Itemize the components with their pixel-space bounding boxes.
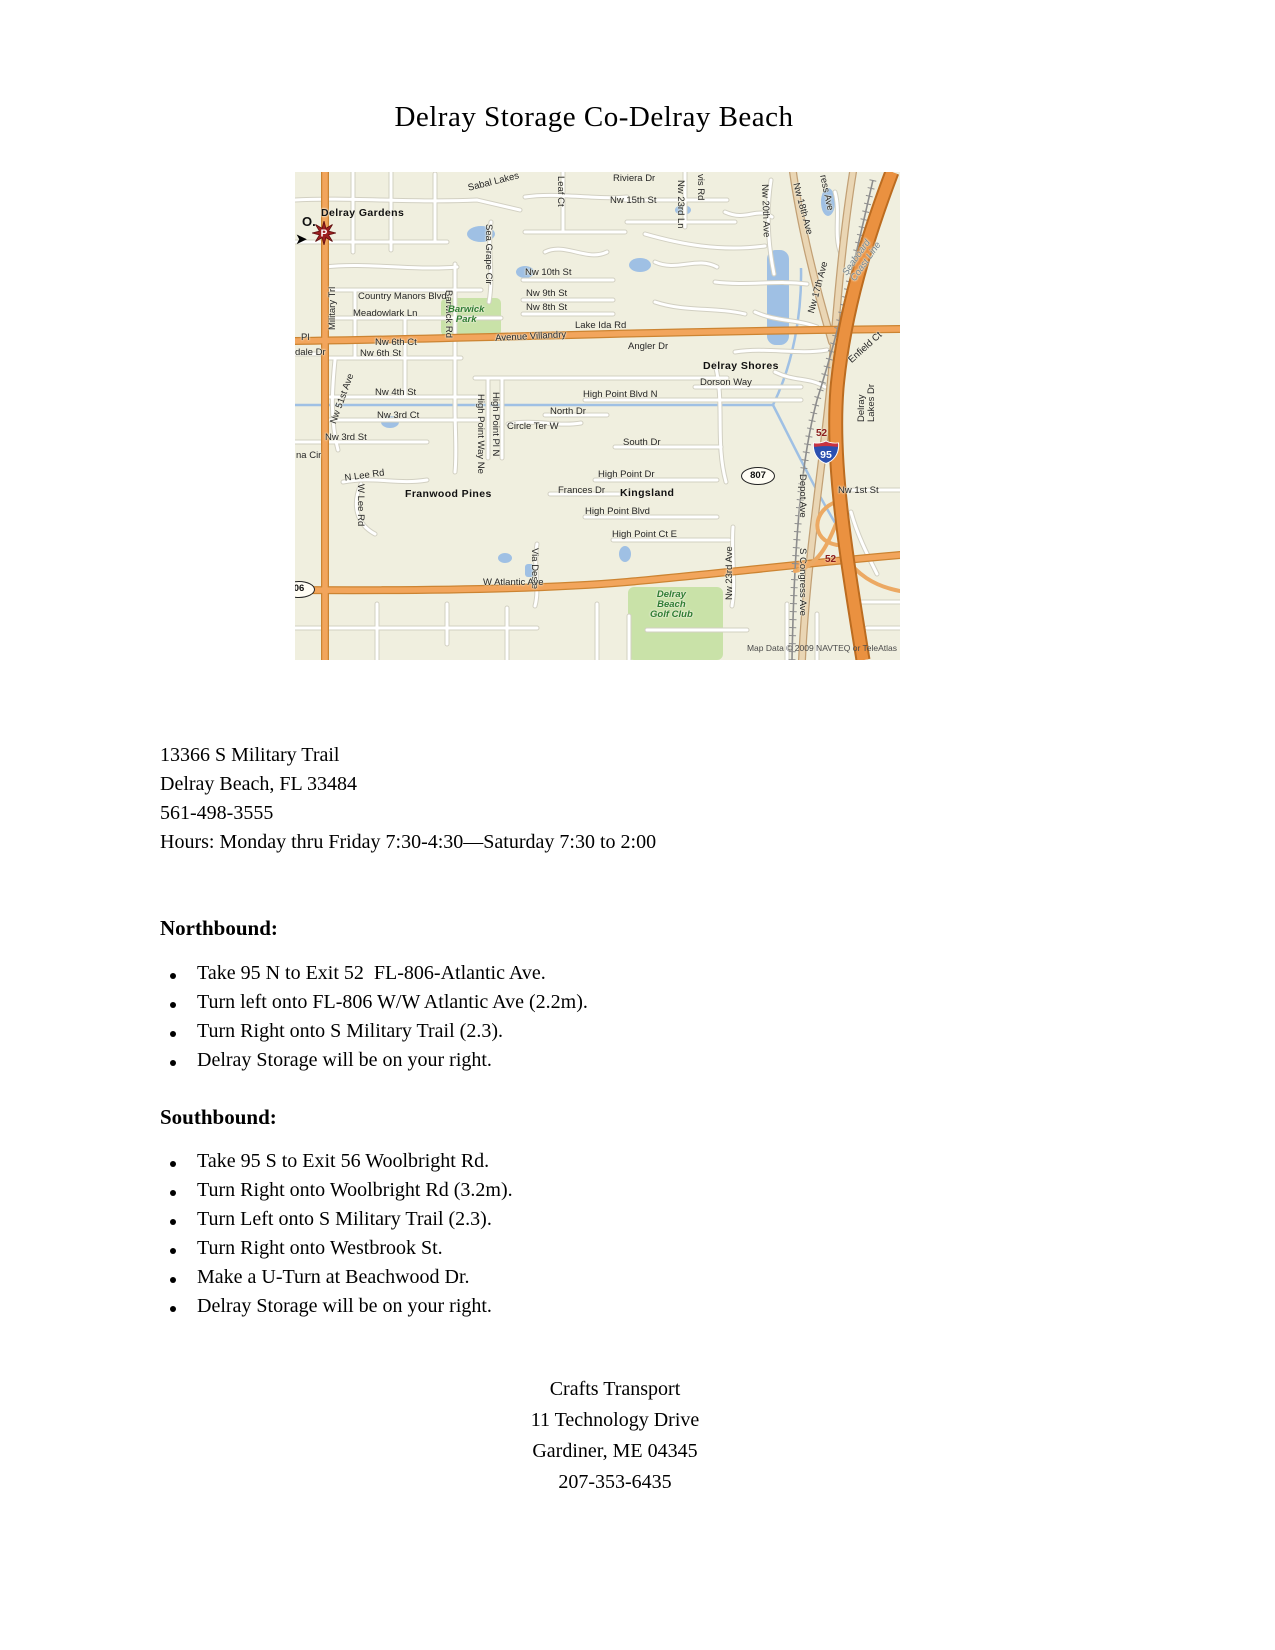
map-label: Nw 10th St: [525, 268, 571, 278]
footer-line: Gardiner, ME 04345: [0, 1436, 1230, 1467]
hours-line: Hours: Monday thru Friday 7:30-4:30—Satu…: [160, 828, 656, 857]
direction-item: Turn left onto FL-806 W/W Atlantic Ave (…: [160, 991, 980, 1020]
direction-item: Turn Left onto S Military Trail (2.3).: [160, 1208, 980, 1237]
map-label: Delray Lakes Dr: [857, 379, 877, 422]
map-label: High Point Dr: [598, 470, 655, 480]
direction-item: Turn Right onto S Military Trail (2.3).: [160, 1020, 980, 1049]
direction-item: Make a U-Turn at Beachwood Dr.: [160, 1266, 980, 1295]
map-label: Lake Ida Rd: [575, 321, 626, 331]
map-label: Meadowlark Ln: [353, 309, 417, 319]
exit-52-label: 52: [816, 428, 827, 439]
direction-item: Turn Right onto Woolbright Rd (3.2m).: [160, 1179, 980, 1208]
map-label: Franwood Pines: [405, 489, 492, 500]
direction-item: Delray Storage will be on your right.: [160, 1049, 980, 1078]
map-image: Delray Gardens Sabal Lakes Leaf Ct Rivie…: [295, 172, 900, 660]
map-label: Nw 1st St: [838, 486, 879, 496]
address-line: 13366 S Military Trail: [160, 741, 656, 770]
map-label: Nw 6th St: [360, 349, 401, 359]
page-title: Delray Storage Co-Delray Beach: [0, 101, 1188, 134]
map-label: Leaf Ct: [555, 176, 565, 207]
i95-number: 95: [820, 449, 832, 461]
section-heading-southbound: Southbound:: [160, 1105, 277, 1130]
map-label: Military Trl: [328, 287, 338, 330]
map-label: Dorson Way: [700, 378, 752, 388]
phone-line: 561-498-3555: [160, 799, 656, 828]
northbound-directions: Take 95 N to Exit 52 FL-806-Atlantic Ave…: [160, 962, 980, 1078]
map-label: vis Rd: [695, 174, 705, 200]
map-label: Delray Shores: [703, 361, 779, 372]
map-label: Frances Dr: [558, 486, 605, 496]
map-label: High Point Blvd N: [583, 390, 657, 400]
map-label: dale Dr: [295, 348, 326, 358]
parking-p-label: P: [321, 229, 328, 240]
direction-item: Take 95 N to Exit 52 FL-806-Atlantic Ave…: [160, 962, 980, 991]
map-label: Pl: [301, 333, 309, 343]
map-label: High Point Blvd: [585, 507, 650, 517]
document-page: { "page": { "title": "Delray Storage Co-…: [0, 0, 1275, 1650]
map-label: Nw 6th Ct: [375, 338, 417, 348]
southbound-directions: Take 95 S to Exit 56 Woolbright Rd. Turn…: [160, 1150, 980, 1324]
map-label: Delray Gardens: [321, 208, 404, 219]
map-copyright: Map Data © 2009 NAVTEQ or TeleAtlas: [747, 643, 897, 653]
map-label: Nw 3rd St: [325, 433, 367, 443]
i95-shield: 95: [812, 440, 840, 464]
footer-line: 207-353-6435: [0, 1467, 1230, 1498]
address-line: Delray Beach, FL 33484: [160, 770, 656, 799]
map-label: Barwick Park: [448, 305, 484, 325]
map-label: North Dr: [550, 407, 586, 417]
direction-item: Delray Storage will be on your right.: [160, 1295, 980, 1324]
footer-line: Crafts Transport: [0, 1374, 1230, 1405]
map-label: Nw 23rd Ave: [725, 546, 735, 600]
destination-star-marker: P: [312, 221, 336, 245]
map-label: na Cir: [296, 451, 321, 461]
map-label: Nw 8th St: [526, 303, 567, 313]
map-label: W Atlantic Ave: [483, 578, 544, 588]
map-label: Nw 4th St: [375, 388, 416, 398]
map-label: Nw 23rd Ln: [675, 180, 685, 229]
map-label: Depot Ave: [797, 474, 807, 518]
map-label: High Point Way Ne: [475, 394, 485, 474]
map-label: Sea Grape Cir: [483, 224, 493, 285]
map-label: Delray Beach Golf Club: [650, 590, 693, 620]
section-heading-northbound: Northbound:: [160, 916, 278, 941]
map-label: High Point Pl N: [490, 392, 500, 456]
exit-52-label: 52: [825, 554, 836, 565]
map-label: South Dr: [623, 438, 661, 448]
map-label: Country Manors Blvd: [358, 292, 447, 302]
map-label: Nw 9th St: [526, 289, 567, 299]
footer-line: 11 Technology Drive: [0, 1405, 1230, 1436]
direction-item: Turn Right onto Westbrook St.: [160, 1237, 980, 1266]
map-label: Nw 20th Ave: [759, 184, 771, 237]
map-label: W Lee Rd: [355, 484, 365, 526]
map-label: S Congress Ave: [797, 548, 807, 616]
fl807-shield: 807: [741, 467, 775, 485]
footer-block: Crafts Transport 11 Technology Drive Gar…: [0, 1374, 1230, 1498]
direction-item: Take 95 S to Exit 56 Woolbright Rd.: [160, 1150, 980, 1179]
map-label: Kingsland: [620, 488, 674, 499]
map-label: Circle Ter W: [507, 422, 559, 432]
address-block: 13366 S Military Trail Delray Beach, FL …: [160, 741, 656, 857]
map-label: High Point Ct E: [612, 530, 677, 540]
map-label: Riviera Dr: [613, 174, 655, 184]
map-label: Nw 15th St: [610, 196, 656, 206]
map-label: Nw 3rd Ct: [377, 411, 419, 421]
map-label: Angler Dr: [628, 342, 668, 352]
arrow-icon: ➤: [295, 230, 308, 249]
